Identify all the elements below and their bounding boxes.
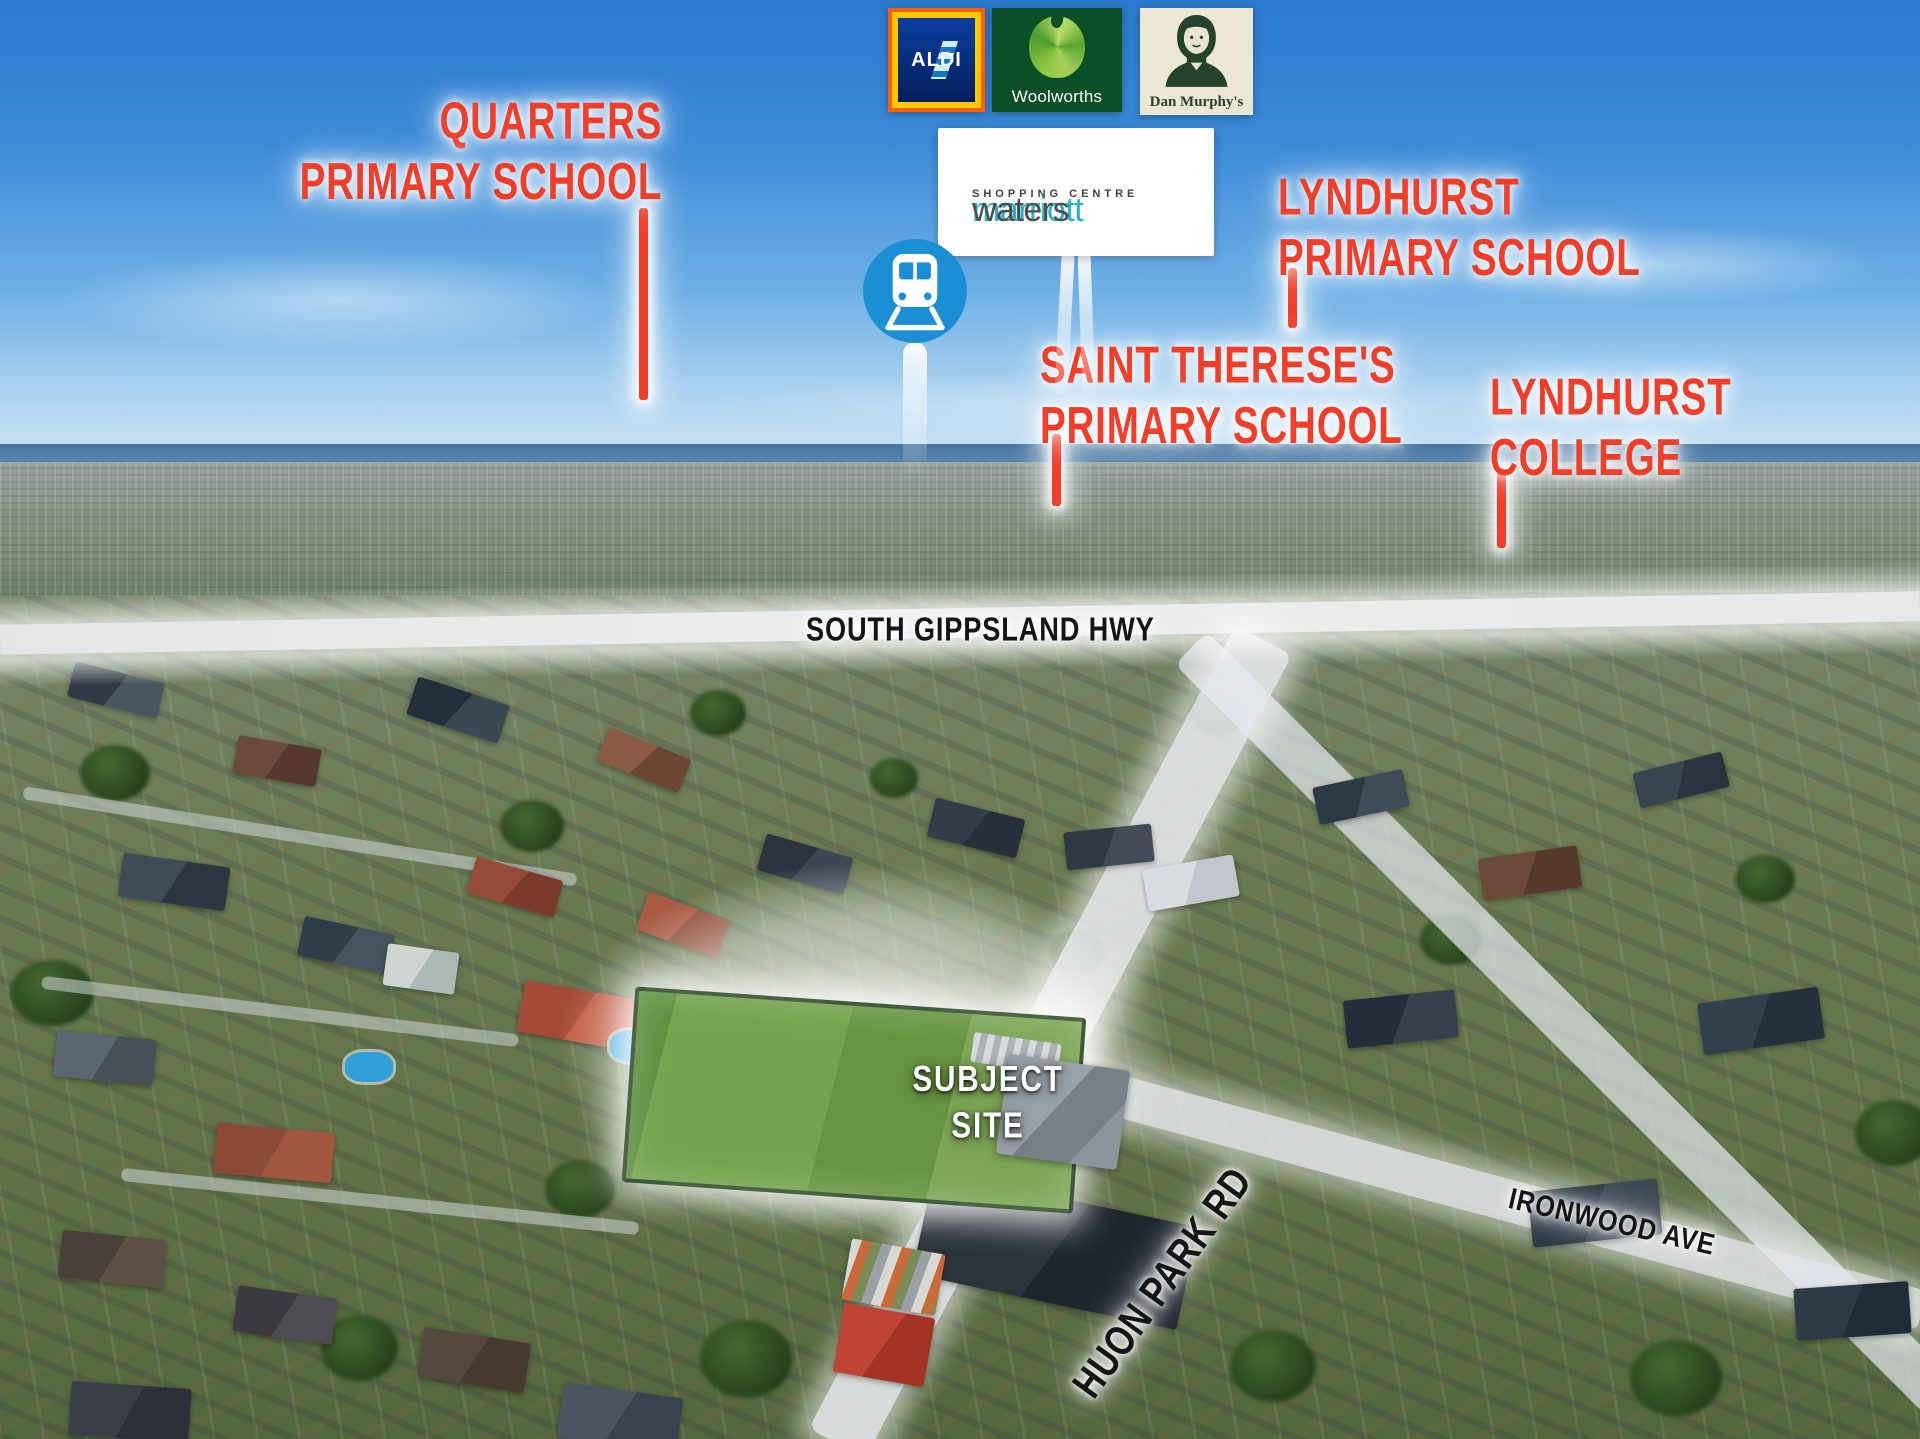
aerial-map: SOUTH GIPPSLAND HWY SUBJECT SITE HUON PA…	[0, 0, 1920, 1439]
woolworths-logo: Woolworths	[992, 8, 1122, 112]
road-label-south-gippsland-hwy: SOUTH GIPPSLAND HWY	[806, 610, 1155, 649]
house-roof	[68, 1381, 191, 1439]
tree	[1735, 855, 1795, 903]
subject-site-label: SUBJECT SITE	[912, 1056, 1063, 1148]
poi-line2: PRIMARY SCHOOL	[299, 151, 662, 212]
aldi-logo: ALDI	[888, 8, 985, 112]
palm-tree	[700, 1320, 792, 1398]
woolworths-apple-icon	[1029, 16, 1085, 78]
dan-murphys-portrait-icon	[1148, 10, 1245, 88]
poi-label-quarters-primary-school: QUARTERS PRIMARY SCHOOL	[299, 90, 662, 211]
swimming-pool	[345, 1052, 393, 1082]
train-station-icon	[862, 238, 968, 344]
poi-line2: PRIMARY SCHOOL	[1278, 227, 1641, 288]
shopping-centre-tagline: SHOPPING CENTRE	[972, 188, 1138, 200]
poi-label-saint-thereses-primary-school: SAINT THERESE'S PRIMARY SCHOOL	[1040, 334, 1403, 455]
subject-site-line2: SITE	[912, 1102, 1063, 1148]
poi-line2: COLLEGE	[1490, 427, 1732, 488]
marriott-waters-sign: marriottwaters SHOPPING CENTRE	[938, 128, 1214, 256]
poi-label-lyndhurst-primary-school: LYNDHURST PRIMARY SCHOOL	[1278, 166, 1641, 287]
poi-line1: LYNDHURST	[1490, 366, 1732, 427]
woolworths-wordmark: Woolworths	[1012, 87, 1103, 107]
poi-label-lyndhurst-college: LYNDHURST COLLEGE	[1490, 366, 1732, 487]
dan-murphys-wordmark: Dan Murphy's	[1150, 94, 1244, 111]
tree	[1630, 1340, 1722, 1416]
subject-site-line1: SUBJECT	[912, 1056, 1063, 1102]
poi-line2: PRIMARY SCHOOL	[1040, 395, 1403, 456]
cloud	[60, 250, 620, 350]
tree	[690, 690, 746, 736]
poi-line1: QUARTERS	[299, 90, 662, 151]
tree	[870, 758, 918, 798]
tree	[1230, 1330, 1316, 1402]
leader-line-quarters	[639, 208, 648, 400]
dan-murphys-logo: Dan Murphy's	[1140, 8, 1253, 115]
aldi-logo-core: ALDI	[898, 18, 975, 102]
house-roof	[1793, 1281, 1911, 1341]
poi-line1: LYNDHURST	[1278, 166, 1641, 227]
train-leader-beam	[903, 342, 927, 474]
tree	[80, 745, 150, 801]
house-roof	[213, 1123, 335, 1183]
aldi-wordmark: ALDI	[911, 49, 962, 72]
